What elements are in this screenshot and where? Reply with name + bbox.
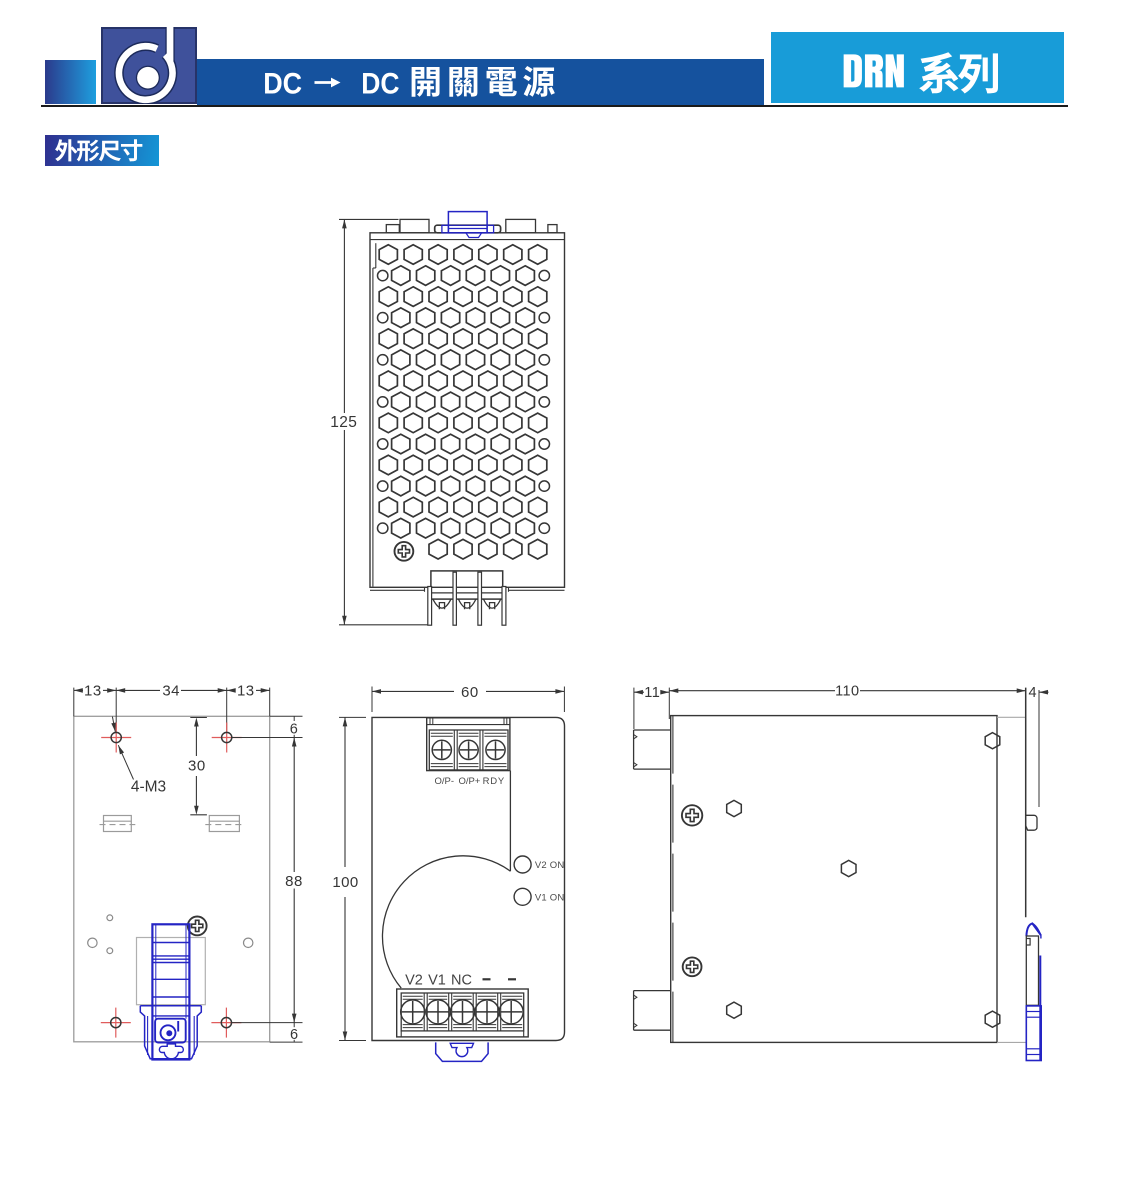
svg-text:6: 6 — [290, 721, 298, 737]
svg-text:13: 13 — [84, 683, 102, 700]
svg-text:O/P-: O/P- — [435, 776, 455, 787]
svg-text:6: 6 — [290, 1027, 298, 1043]
svg-text:RDY: RDY — [483, 776, 505, 787]
svg-text:V1: V1 — [428, 973, 446, 989]
svg-text:V1 ON: V1 ON — [535, 892, 565, 903]
svg-text:4: 4 — [1028, 685, 1036, 701]
svg-text:11: 11 — [644, 685, 660, 701]
svg-text:V2: V2 — [405, 973, 423, 989]
svg-text:100: 100 — [332, 874, 358, 891]
svg-text:88: 88 — [285, 873, 303, 890]
svg-text:60: 60 — [461, 684, 479, 701]
svg-text:110: 110 — [835, 683, 859, 699]
svg-text:V2 ON: V2 ON — [535, 860, 565, 871]
svg-text:O/P+: O/P+ — [458, 776, 480, 787]
svg-text:NC: NC — [451, 973, 472, 989]
svg-text:30: 30 — [188, 758, 206, 775]
svg-text:4-M3: 4-M3 — [131, 779, 166, 796]
svg-text:125: 125 — [330, 414, 357, 431]
svg-text:13: 13 — [237, 683, 255, 700]
svg-text:34: 34 — [162, 683, 180, 700]
